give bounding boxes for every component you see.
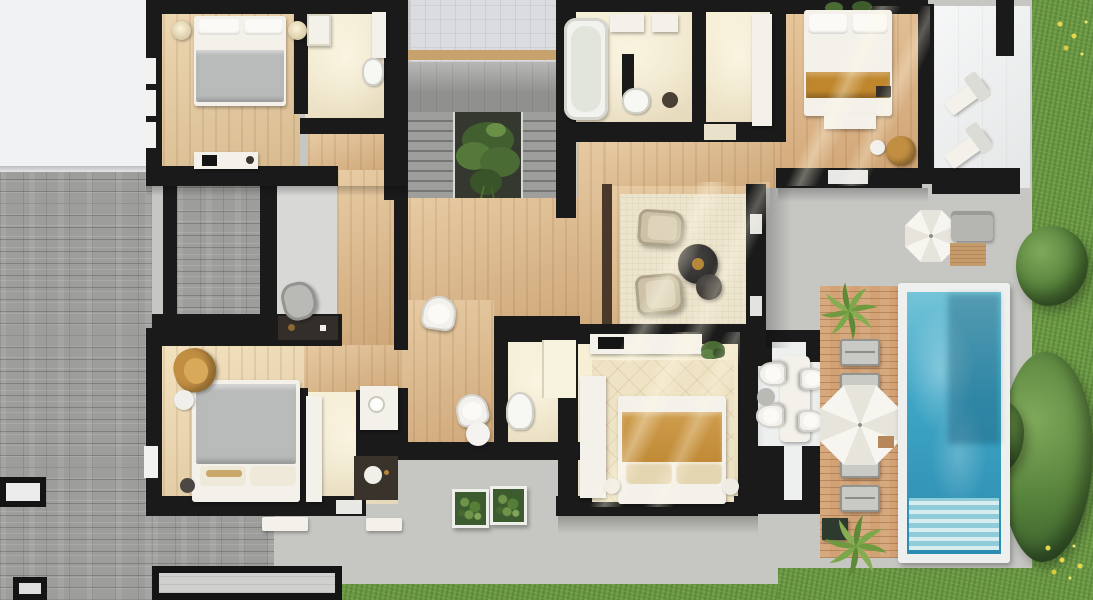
corridor-center-floor — [577, 130, 604, 345]
nightstand-with-lamp — [288, 21, 307, 40]
terrace-low-wall — [932, 168, 1020, 194]
brick-roof-left — [0, 172, 152, 600]
washbasin-counter — [610, 14, 644, 32]
bath-panel — [372, 12, 386, 58]
washbasin — [364, 466, 382, 484]
dining-chair — [758, 362, 786, 386]
wall — [558, 0, 778, 12]
planter-box — [490, 486, 527, 525]
planter-box — [452, 489, 489, 528]
side-table-gray — [757, 388, 775, 406]
bed-pillow — [244, 19, 283, 35]
brick-roof-mid — [177, 186, 260, 332]
laptop — [876, 86, 891, 97]
pouf — [604, 478, 620, 494]
deck-side-table — [878, 436, 894, 448]
toilet — [622, 88, 650, 114]
armchair — [634, 272, 684, 316]
wall — [918, 4, 934, 184]
wall — [692, 12, 706, 130]
toilet — [362, 58, 384, 86]
gold-tray — [692, 258, 704, 270]
shower-tray — [307, 14, 331, 46]
pergola-post — [802, 446, 822, 500]
nook-table — [466, 422, 490, 446]
pool-steps — [909, 498, 999, 550]
desk — [278, 316, 338, 340]
wall — [738, 328, 758, 512]
desk-lamp — [288, 324, 295, 331]
outdoor-sofa — [951, 211, 993, 241]
floor-plan-render — [0, 0, 1093, 600]
roof-skylight — [0, 477, 46, 507]
stair-top-sill — [408, 50, 556, 60]
decor-object — [246, 156, 254, 164]
pergola-post — [758, 446, 784, 512]
bed-pillow — [626, 462, 672, 484]
palm-plant — [822, 512, 890, 580]
garage-roof-panel — [152, 566, 342, 600]
window — [750, 214, 762, 234]
wall — [558, 122, 778, 142]
window — [750, 296, 762, 316]
round-armchair — [886, 136, 916, 166]
bed-blanket — [196, 50, 284, 102]
stairwell-wall-left — [394, 0, 408, 350]
dining-chair — [756, 404, 784, 428]
window — [144, 58, 156, 84]
building-shadow — [146, 186, 406, 196]
side-table-marble — [696, 274, 722, 300]
building-shadow — [558, 516, 758, 534]
deck-lounger — [840, 485, 880, 512]
palm-plant — [818, 280, 880, 342]
bed-blanket — [196, 384, 296, 464]
side-table — [870, 140, 885, 155]
yellow-flowers — [1054, 16, 1088, 62]
bathtub-basin — [571, 26, 601, 112]
window — [144, 90, 156, 116]
shower — [542, 340, 576, 398]
gold-faucet — [384, 470, 389, 475]
deck-lounger — [840, 339, 880, 366]
building-shadow — [766, 188, 792, 348]
bed-pillow — [808, 14, 848, 34]
outdoor-rug-wood — [950, 243, 986, 266]
corridor-ne-floor — [604, 140, 782, 188]
wall — [394, 442, 580, 460]
washbasin — [368, 396, 385, 413]
side-table — [174, 390, 194, 410]
wall — [146, 0, 402, 14]
sitting-area-wall-left — [602, 184, 612, 346]
toilet — [506, 392, 534, 430]
front-door-sill — [336, 500, 362, 514]
pouf — [722, 478, 739, 495]
pillow-accent — [206, 470, 242, 477]
outdoor-bench — [366, 518, 402, 531]
wall — [260, 186, 277, 332]
washbasin-counter — [652, 14, 678, 32]
yellow-flowers — [1042, 540, 1086, 586]
door-opening — [704, 124, 736, 140]
window — [144, 446, 158, 478]
roof-skylight — [13, 577, 47, 600]
wall — [494, 334, 508, 458]
tv — [202, 155, 217, 166]
wall — [300, 118, 390, 134]
bed-footband — [806, 98, 890, 114]
bed-pillow — [676, 462, 722, 484]
wall — [146, 328, 162, 516]
wall — [770, 0, 786, 142]
outdoor-bench — [262, 517, 308, 531]
desk-object — [320, 325, 326, 331]
building-shadow — [778, 188, 928, 202]
pouf-dark — [180, 478, 195, 493]
armchair — [637, 208, 685, 247]
deck-umbrella — [820, 385, 900, 465]
wardrobe — [580, 376, 606, 498]
sliding-door-opening — [828, 170, 868, 184]
bed-blanket — [622, 412, 722, 462]
potted-plant — [698, 336, 728, 366]
window — [144, 122, 156, 148]
bed-bench — [824, 114, 876, 129]
corridor-nw-floor — [308, 132, 396, 170]
flat-white-roof — [0, 0, 150, 172]
terrace-post — [996, 0, 1014, 56]
bed-pillow — [198, 19, 240, 35]
bed-pillow — [852, 14, 888, 34]
pool-shadow — [948, 294, 1000, 444]
closet-cabinet — [752, 14, 772, 126]
side-stool — [662, 92, 678, 108]
nightstand-with-lamp — [172, 21, 191, 40]
bed-pillow — [250, 466, 296, 486]
bathroom-door-panel — [306, 396, 322, 502]
tv — [598, 337, 624, 349]
